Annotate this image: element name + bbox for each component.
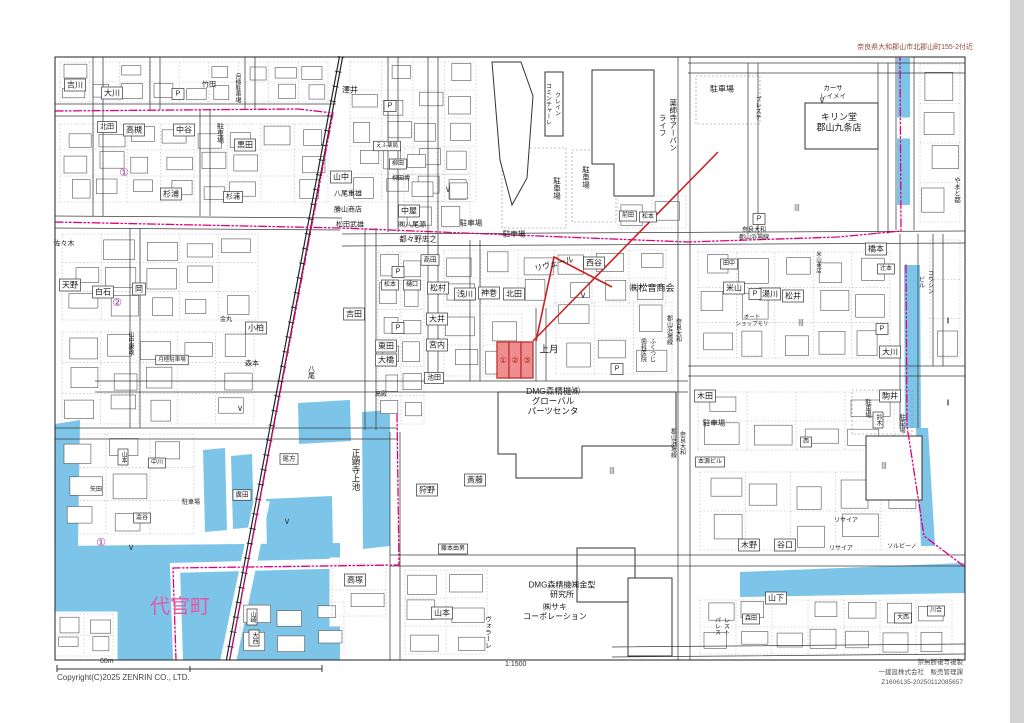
svg-text:駒井: 駒井 xyxy=(882,391,898,401)
building xyxy=(447,151,466,169)
map-label: ∨ xyxy=(580,290,587,300)
map-label: 中谷 xyxy=(174,124,195,136)
svg-text:P: P xyxy=(880,326,885,333)
building xyxy=(186,300,206,314)
svg-text:廣田: 廣田 xyxy=(236,490,249,499)
svg-text:高殿: 高殿 xyxy=(375,390,387,398)
svg-text:狩野: 狩野 xyxy=(419,485,435,495)
building xyxy=(275,68,296,79)
building xyxy=(403,342,420,362)
svg-text:田中: 田中 xyxy=(723,259,735,267)
building xyxy=(754,425,792,445)
building xyxy=(278,636,305,652)
svg-text:P: P xyxy=(388,103,393,110)
building xyxy=(405,403,421,416)
svg-text:川合: 川合 xyxy=(930,606,942,614)
svg-text:高槻: 高槻 xyxy=(126,125,142,135)
map-label: ∨ xyxy=(128,542,135,552)
svg-text:藤本由男: 藤本由男 xyxy=(441,544,465,552)
map-label: P xyxy=(392,323,404,334)
svg-text:コウシン: コウシン xyxy=(927,270,934,294)
building xyxy=(202,152,226,168)
building xyxy=(187,244,213,257)
map-label: 薬師寺アーバンライフ xyxy=(658,97,678,151)
map-label: 尾方 xyxy=(280,454,298,465)
map-label: 湯川 xyxy=(760,288,781,300)
svg-text:∨: ∨ xyxy=(819,95,826,105)
notice-line-2: 一建設株式会社 販売管理課 xyxy=(879,667,964,676)
building xyxy=(455,350,477,365)
building xyxy=(711,478,742,496)
map-label: 本源ビル xyxy=(696,457,725,467)
map-label: 黒田 xyxy=(235,139,256,151)
svg-text:駐車場: 駐車場 xyxy=(182,498,200,506)
building xyxy=(279,84,296,98)
building xyxy=(59,637,78,647)
building xyxy=(93,637,109,651)
map-label: 浅川 xyxy=(455,288,476,300)
building xyxy=(420,92,443,106)
svg-text:辻本: 辻本 xyxy=(880,264,892,272)
scan-edge xyxy=(1010,0,1024,723)
building xyxy=(153,298,173,316)
svg-text:えふ薬局: えふ薬局 xyxy=(376,141,398,149)
svg-text:樋口: 樋口 xyxy=(406,280,418,288)
svg-text:郡山浜場線: 郡山浜場線 xyxy=(670,427,677,458)
map-label: 松井 xyxy=(783,290,804,302)
svg-text:㈱松音商会: ㈱松音商会 xyxy=(629,282,674,293)
svg-text:森本: 森本 xyxy=(245,359,259,368)
map-label: 小柏 xyxy=(246,322,267,334)
map-label: ‖ xyxy=(946,399,949,408)
map-label: 八尾重雄 xyxy=(334,189,362,198)
map-label: 柳田博 xyxy=(392,174,410,182)
map-label: 澤井 xyxy=(342,85,358,95)
svg-text:山本: 山本 xyxy=(120,450,127,464)
svg-text:木野: 木野 xyxy=(741,540,757,550)
map-label: 斎藤 xyxy=(465,474,486,486)
map-label: 杉浦 xyxy=(161,188,182,200)
building xyxy=(134,180,153,192)
building xyxy=(188,266,213,282)
map-label: DMG森精機㈱グローバルパーツセンタ xyxy=(526,386,580,416)
svg-text:㈱サキコーポレーション: ㈱サキコーポレーション xyxy=(523,601,587,621)
svg-text:正顕寺上池: 正顕寺上池 xyxy=(351,449,361,492)
map-label: 月極駐車場 xyxy=(156,355,189,365)
svg-text:岡: 岡 xyxy=(135,285,143,294)
map-label: 山下 xyxy=(766,592,787,604)
svg-text:|||: ||| xyxy=(794,205,800,212)
svg-text:松井: 松井 xyxy=(785,291,801,301)
parcel-number: ② xyxy=(511,355,519,365)
map-label: 駐車場 xyxy=(581,164,590,189)
building xyxy=(353,122,369,142)
svg-text:西: 西 xyxy=(803,438,809,445)
map-label: 大橋 xyxy=(376,354,397,366)
highlight-parcels: ①②③ xyxy=(497,342,533,378)
map-label: 森本 xyxy=(245,359,259,368)
svg-text:駐車場: 駐車場 xyxy=(703,418,726,428)
map-sheet-title: 奈良県大和郡山市北郡山町155-2付近 xyxy=(857,42,973,51)
building xyxy=(405,288,419,306)
svg-text:‖: ‖ xyxy=(946,399,949,408)
map-label: 白石 xyxy=(93,286,114,298)
svg-text:やまと都: やまと都 xyxy=(953,177,961,205)
svg-text:中川: 中川 xyxy=(151,458,163,466)
building xyxy=(381,400,398,413)
map-label: P xyxy=(384,101,396,112)
building xyxy=(146,367,172,388)
building xyxy=(487,252,508,272)
svg-text:歯科医院: 歯科医院 xyxy=(640,337,647,363)
svg-text:P: P xyxy=(396,269,401,276)
svg-text:佐々木: 佐々木 xyxy=(54,239,75,248)
map-label: 木田 xyxy=(695,390,716,402)
svg-text:柳田博: 柳田博 xyxy=(392,174,410,182)
svg-text:都々野忠之: 都々野忠之 xyxy=(399,234,437,244)
building xyxy=(70,338,98,359)
map-label: 大西 xyxy=(895,613,912,623)
building xyxy=(738,258,768,283)
large-buildings xyxy=(492,62,922,656)
building xyxy=(701,292,723,311)
map-label: リサイア xyxy=(834,517,858,524)
svg-text:ヴォラーレ: ヴォラーレ xyxy=(484,614,492,648)
map-label: 駐車場 xyxy=(182,498,200,506)
map-label: えふ薬局 xyxy=(374,141,401,151)
svg-text:中屋: 中屋 xyxy=(401,206,417,216)
map-label: P xyxy=(876,324,888,335)
svg-text:米山: 米山 xyxy=(726,283,742,293)
svg-text:高塚: 高塚 xyxy=(347,575,363,585)
building xyxy=(309,85,325,99)
svg-text:駐車場: 駐車場 xyxy=(710,84,734,94)
building xyxy=(924,113,954,135)
svg-text:代官町: 代官町 xyxy=(150,595,210,618)
map-label: 大川 xyxy=(102,87,123,99)
map-label: ① xyxy=(96,537,106,549)
map-label: 矢田 xyxy=(90,485,102,493)
building xyxy=(442,206,460,226)
map-label: 金丸 xyxy=(220,315,232,323)
building xyxy=(212,67,228,78)
map-label: 中川 xyxy=(149,458,166,468)
svg-text:山本: 山本 xyxy=(434,608,450,618)
map-label: 前田 xyxy=(620,211,637,221)
map-label: 天野 xyxy=(60,279,81,291)
svg-text:プレステ: プレステ xyxy=(754,96,761,120)
svg-text:ふくつじ: ふくつじ xyxy=(649,338,656,362)
map-label: プレステ xyxy=(754,96,761,120)
svg-text:八尾重雄: 八尾重雄 xyxy=(334,189,362,198)
map-label: ∨ xyxy=(819,95,826,105)
building xyxy=(64,444,91,463)
building xyxy=(841,480,868,508)
map-label: 山崎 xyxy=(247,609,257,625)
building xyxy=(922,188,944,212)
svg-text:高田: 高田 xyxy=(424,255,437,264)
svg-text:上月: 上月 xyxy=(539,345,558,356)
building xyxy=(849,602,876,618)
map-label: P xyxy=(753,214,765,225)
map-label: 駐車場 xyxy=(503,229,526,239)
map-label: 大川 xyxy=(880,346,901,358)
map-label: P xyxy=(611,364,623,375)
svg-text:浅川: 浅川 xyxy=(457,289,473,299)
map-label: 神巻 xyxy=(479,287,500,299)
svg-text:矢田: 矢田 xyxy=(90,485,102,493)
map-label: 鈴木 xyxy=(873,412,883,428)
svg-text:大井: 大井 xyxy=(429,314,445,324)
svg-text:リサイア: リサイア xyxy=(834,517,858,524)
building xyxy=(797,487,821,510)
map-label: 高槻 xyxy=(124,124,145,136)
building xyxy=(100,152,124,169)
building xyxy=(72,180,90,199)
svg-text:勝山商店: 勝山商店 xyxy=(334,205,362,214)
map-label: 米山商店 xyxy=(815,250,822,275)
building xyxy=(407,155,425,168)
parcel-number: ① xyxy=(499,355,507,365)
svg-text:P: P xyxy=(757,216,762,223)
map-label: 岡 xyxy=(133,283,146,295)
map-label: 駐車場 xyxy=(217,122,225,145)
map-label: ∨ xyxy=(445,184,452,194)
map-label: 上月 xyxy=(539,345,558,356)
building xyxy=(187,89,207,100)
map-label: リサイア xyxy=(829,545,853,552)
map-label: 駒井 xyxy=(880,390,901,402)
map-label: ||| xyxy=(798,320,804,327)
building xyxy=(277,611,302,627)
building xyxy=(360,150,378,163)
svg-text:コミンチャーレ: コミンチャーレ xyxy=(545,83,552,125)
building xyxy=(392,65,410,78)
svg-text:米山商店: 米山商店 xyxy=(815,250,822,275)
map-label: 池田 xyxy=(425,373,444,384)
map-label: 都々野忠之 xyxy=(399,234,437,244)
map-label: 松村 xyxy=(428,282,449,294)
scale-bar xyxy=(57,665,322,672)
map-label: 山本 xyxy=(432,607,453,619)
svg-text:|||: ||| xyxy=(798,320,804,327)
building xyxy=(304,130,322,146)
building xyxy=(221,239,250,253)
map-label: 東田 xyxy=(376,340,397,352)
map-label: 奈良大和郡山浜場線 xyxy=(670,427,686,458)
svg-text:奈良大和: 奈良大和 xyxy=(679,430,686,456)
building xyxy=(388,121,411,137)
building xyxy=(302,67,322,80)
building xyxy=(167,157,193,170)
map-label: ||| xyxy=(794,205,800,212)
building xyxy=(851,400,890,417)
svg-text:ビル: ビル xyxy=(918,275,925,288)
svg-text:∨: ∨ xyxy=(445,184,452,194)
svg-text:尾方: 尾方 xyxy=(283,454,297,463)
building xyxy=(937,331,957,356)
svg-text:西谷: 西谷 xyxy=(586,259,602,268)
building xyxy=(448,97,470,114)
svg-text:杉浦: 杉浦 xyxy=(226,192,240,201)
svg-text:澤井: 澤井 xyxy=(342,85,358,95)
svg-text:|||: ||| xyxy=(609,468,615,475)
map-label: 辻本 xyxy=(878,264,895,274)
building-dmg-parts-center xyxy=(498,392,676,478)
scale-ratio-label: 1:1500 xyxy=(505,661,527,668)
map-label: ||| xyxy=(609,468,615,475)
map-label: ∨ xyxy=(284,516,291,526)
building xyxy=(352,94,377,107)
map-label: 佐々木 xyxy=(54,239,75,248)
map-label: P xyxy=(392,267,404,278)
map-label: 駐車場 xyxy=(552,175,561,200)
svg-text:谷口: 谷口 xyxy=(777,541,793,550)
building xyxy=(67,507,92,524)
svg-text:駐車場: 駐車場 xyxy=(898,412,906,434)
building-dmg-lab-b xyxy=(628,578,672,656)
svg-text:天野: 天野 xyxy=(62,281,78,290)
building xyxy=(452,64,471,81)
map-label: 樋口 xyxy=(404,280,421,290)
svg-text:山中: 山中 xyxy=(333,172,349,182)
map-label: 代官町 xyxy=(150,595,210,618)
building xyxy=(91,620,111,633)
map-label: ㈱松音商会 xyxy=(629,282,674,293)
map-label: 西 xyxy=(801,437,812,447)
building xyxy=(567,343,591,367)
building xyxy=(606,280,626,300)
svg-text:柳田: 柳田 xyxy=(392,159,404,167)
map-label: 柳田 xyxy=(390,159,407,169)
building xyxy=(408,575,437,594)
building xyxy=(214,86,229,100)
building xyxy=(121,84,143,99)
svg-text:大川: 大川 xyxy=(104,88,120,98)
svg-text:松本: 松本 xyxy=(642,212,654,220)
building xyxy=(250,67,266,80)
map-label: 森田 xyxy=(743,614,760,624)
map-label: 吉川 xyxy=(65,79,86,91)
svg-text:中谷: 中谷 xyxy=(176,125,192,135)
building xyxy=(225,334,245,357)
map-label: 宮内 xyxy=(427,339,448,351)
map-label: P xyxy=(749,289,761,300)
building xyxy=(154,84,173,98)
building xyxy=(450,183,468,199)
svg-text:澁谷: 澁谷 xyxy=(136,513,148,521)
building xyxy=(883,633,908,652)
svg-text:奈良大和: 奈良大和 xyxy=(675,317,682,343)
building xyxy=(185,343,212,357)
map-label: ㈱八尾源 xyxy=(398,220,426,229)
building xyxy=(742,331,762,356)
svg-text:松本: 松本 xyxy=(384,280,396,288)
svg-text:∨: ∨ xyxy=(284,516,291,526)
map-label: 駐車場 xyxy=(703,418,726,428)
building xyxy=(412,182,433,197)
map-label: 駐車場 xyxy=(898,412,906,434)
building xyxy=(71,367,98,387)
svg-text:湯川: 湯川 xyxy=(762,289,778,299)
building xyxy=(404,321,421,334)
building xyxy=(559,305,589,324)
svg-text:①: ① xyxy=(119,167,129,179)
building xyxy=(921,632,942,651)
building xyxy=(111,395,136,409)
building xyxy=(155,442,179,459)
building xyxy=(493,322,517,341)
map-label: 谷口 xyxy=(775,539,796,551)
building xyxy=(151,400,170,421)
map-label: 正顕寺上池 xyxy=(351,449,361,492)
building xyxy=(403,373,421,389)
map-label: ② xyxy=(112,297,122,309)
svg-text:神巻: 神巻 xyxy=(481,288,497,298)
svg-text:駐車場: 駐車場 xyxy=(217,122,225,145)
map-label: 駐車場 xyxy=(460,218,483,228)
map-label: 大井 xyxy=(427,313,448,325)
svg-text:②: ② xyxy=(112,297,122,309)
building-zigzag xyxy=(492,62,533,205)
svg-text:木田: 木田 xyxy=(697,391,713,401)
map-label: 藤本由男 xyxy=(439,544,468,554)
svg-text:P: P xyxy=(176,91,181,98)
svg-text:パレス: パレス xyxy=(714,617,721,635)
svg-text:㈱八尾源: ㈱八尾源 xyxy=(398,220,426,229)
building xyxy=(777,633,802,647)
map-label: 奈良大和郡山浜場線 xyxy=(666,314,682,345)
building xyxy=(925,72,953,100)
map-label: やまと都 xyxy=(953,177,961,205)
building xyxy=(114,374,137,390)
svg-text:斎藤: 斎藤 xyxy=(467,475,483,485)
svg-text:キリン堂郡山九条店: キリン堂郡山九条店 xyxy=(816,111,861,133)
map-label: 松本 xyxy=(640,212,657,222)
building xyxy=(234,155,258,171)
svg-text:八尾: 八尾 xyxy=(308,365,316,380)
building xyxy=(411,635,439,651)
building xyxy=(228,296,249,315)
map-label: 西谷 xyxy=(584,257,605,269)
svg-text:山下: 山下 xyxy=(768,593,784,603)
svg-text:∨: ∨ xyxy=(128,542,135,552)
svg-text:郡山浜場線: 郡山浜場線 xyxy=(666,314,673,345)
svg-text:松田武雄: 松田武雄 xyxy=(336,220,364,229)
map-label: ‖ xyxy=(946,317,949,326)
map-label: 山中 xyxy=(331,171,352,183)
building xyxy=(147,269,177,289)
building xyxy=(64,156,87,173)
map-label: キリン堂郡山九条店 xyxy=(816,111,861,133)
map-label: 吉田 xyxy=(344,308,365,320)
building xyxy=(96,179,117,194)
svg-text:本源ビル: 本源ビル xyxy=(698,457,722,465)
map-label: 澁谷 xyxy=(134,513,151,523)
svg-text:竹田: 竹田 xyxy=(202,80,216,89)
building xyxy=(641,254,663,268)
svg-text:駐車場: 駐車場 xyxy=(503,229,526,239)
map-label: 橋本 xyxy=(866,243,887,255)
map-label: 高殿 xyxy=(375,390,387,398)
svg-text:大西: 大西 xyxy=(251,631,258,645)
building xyxy=(106,267,136,287)
building-dmg-lab-a xyxy=(577,548,635,602)
building xyxy=(386,375,398,391)
svg-text:月極駐車場: 月極駐車場 xyxy=(234,73,241,104)
building xyxy=(415,123,436,141)
svg-text:DMG森精機㈱グローバルパーツセンタ: DMG森精機㈱グローバルパーツセンタ xyxy=(526,386,580,416)
